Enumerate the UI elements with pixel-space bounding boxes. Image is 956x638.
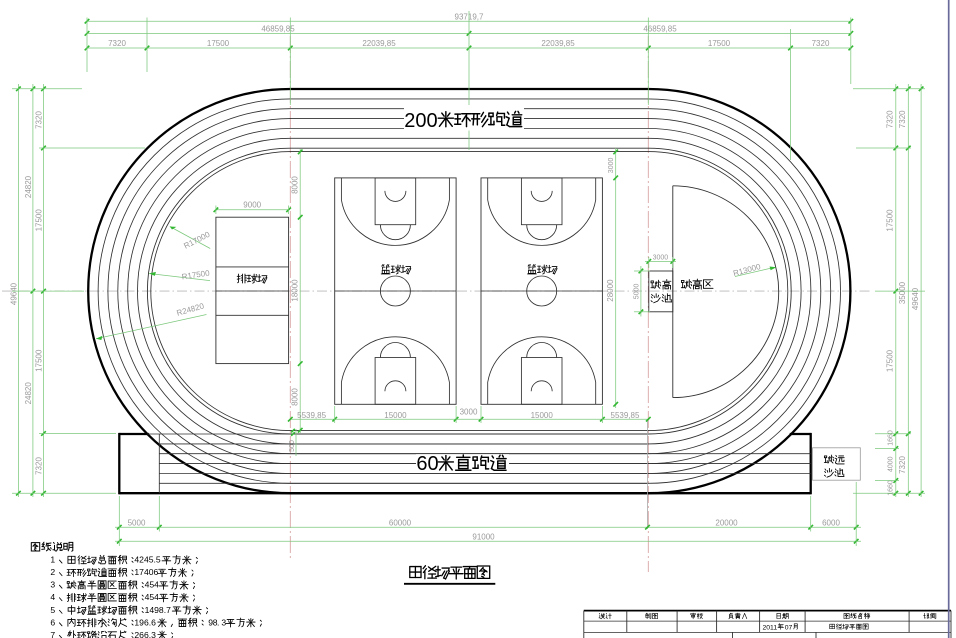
svg-text:17500: 17500 <box>35 349 44 372</box>
svg-text:17500: 17500 <box>35 209 44 232</box>
svg-text:22039,85: 22039,85 <box>541 39 575 48</box>
svg-text:7: 7 <box>50 630 55 638</box>
svg-text:1660: 1660 <box>888 430 895 446</box>
svg-text:196.6: 196.6 <box>134 617 156 627</box>
svg-text:6000: 6000 <box>822 518 840 527</box>
svg-text:20000: 20000 <box>715 518 738 527</box>
svg-text:22039,85: 22039,85 <box>362 39 396 48</box>
svg-text:7320: 7320 <box>35 111 44 129</box>
svg-text:7320: 7320 <box>898 456 907 474</box>
svg-text:3000: 3000 <box>608 158 615 174</box>
svg-text:24820: 24820 <box>24 175 33 198</box>
svg-text:7320: 7320 <box>812 39 830 48</box>
svg-text:07: 07 <box>785 624 793 631</box>
svg-text:8000: 8000 <box>291 176 300 194</box>
svg-text:24820: 24820 <box>24 382 33 405</box>
svg-text:4245.5: 4245.5 <box>134 555 161 565</box>
svg-text:7320: 7320 <box>886 110 895 128</box>
svg-text:17500: 17500 <box>207 39 230 48</box>
svg-text:4: 4 <box>50 592 55 602</box>
svg-text:15000: 15000 <box>531 411 554 420</box>
svg-text:35000: 35000 <box>898 281 907 304</box>
svg-text:28000: 28000 <box>606 279 615 302</box>
svg-text:6: 6 <box>50 617 55 627</box>
svg-text:454: 454 <box>145 580 160 590</box>
svg-text:17500: 17500 <box>708 39 731 48</box>
svg-text:3: 3 <box>221 617 226 627</box>
svg-text:200: 200 <box>404 110 437 132</box>
svg-text:4000: 4000 <box>888 456 895 472</box>
svg-text:5000: 5000 <box>128 518 146 527</box>
svg-text:3000: 3000 <box>653 255 669 262</box>
svg-text:17406: 17406 <box>134 567 158 577</box>
svg-text:5000: 5000 <box>633 284 640 300</box>
svg-text:60000: 60000 <box>389 518 412 527</box>
svg-text:3000: 3000 <box>460 408 478 417</box>
svg-text:3: 3 <box>50 580 55 590</box>
svg-text:.: . <box>217 617 219 627</box>
svg-text:2011: 2011 <box>763 624 778 631</box>
svg-text:7320: 7320 <box>35 457 44 475</box>
svg-text:17500: 17500 <box>886 349 895 372</box>
svg-text:266.3: 266.3 <box>134 630 156 638</box>
svg-text:17500: 17500 <box>886 209 895 232</box>
svg-text:49640: 49640 <box>9 282 18 305</box>
svg-text:454: 454 <box>145 592 160 602</box>
svg-text:7320: 7320 <box>898 110 907 128</box>
svg-text:5539,85: 5539,85 <box>611 411 640 420</box>
svg-text:60: 60 <box>416 453 438 475</box>
svg-text:8000: 8000 <box>291 388 300 406</box>
svg-text:7320: 7320 <box>108 39 126 48</box>
svg-text:5539,85: 5539,85 <box>297 411 326 420</box>
svg-text:91000: 91000 <box>472 532 495 541</box>
svg-text:18000: 18000 <box>291 279 300 302</box>
svg-text:1498.7: 1498.7 <box>145 605 172 615</box>
svg-text:15000: 15000 <box>384 411 407 420</box>
svg-text:9000: 9000 <box>243 200 261 209</box>
svg-text:1: 1 <box>50 555 55 565</box>
svg-text:5: 5 <box>50 605 55 615</box>
svg-text:2: 2 <box>50 567 55 577</box>
svg-text:500: 500 <box>289 440 296 452</box>
